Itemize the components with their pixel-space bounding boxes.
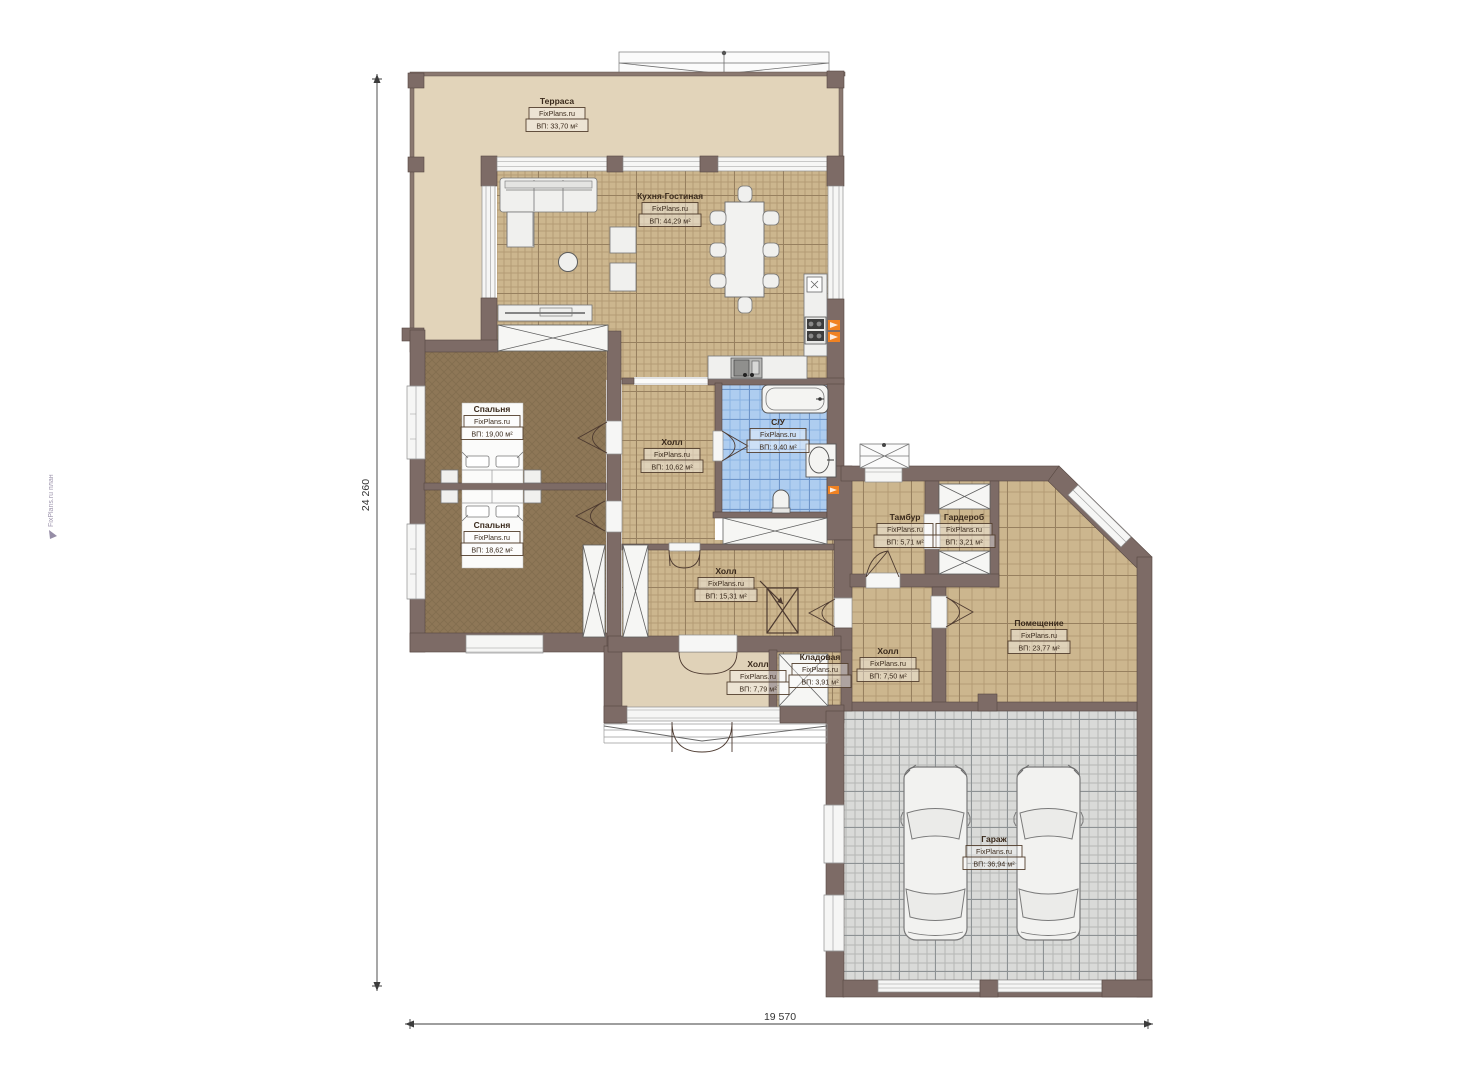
svg-text:FixPlans.ru план: FixPlans.ru план <box>48 474 55 527</box>
svg-text:FixPlans.ru: FixPlans.ru <box>539 109 575 118</box>
svg-text:24 260: 24 260 <box>360 479 372 511</box>
svg-text:FixPlans.ru: FixPlans.ru <box>740 672 776 681</box>
svg-text:FixPlans.ru: FixPlans.ru <box>652 204 688 213</box>
svg-text:Терраса: Терраса <box>540 96 574 106</box>
svg-text:FixPlans.ru: FixPlans.ru <box>887 525 923 534</box>
svg-text:FixPlans.ru: FixPlans.ru <box>708 579 744 588</box>
svg-text:Гараж: Гараж <box>981 834 1007 844</box>
svg-text:ВП: 33,70 м²: ВП: 33,70 м² <box>536 121 578 130</box>
svg-text:FixPlans.ru: FixPlans.ru <box>474 533 510 542</box>
svg-text:Гардероб: Гардероб <box>944 512 984 522</box>
svg-text:FixPlans.ru: FixPlans.ru <box>474 417 510 426</box>
svg-text:Холл: Холл <box>877 646 898 656</box>
svg-text:ВП: 10,62 м²: ВП: 10,62 м² <box>651 462 693 471</box>
svg-text:FixPlans.ru: FixPlans.ru <box>870 659 906 668</box>
svg-text:ВП: 44,29 м²: ВП: 44,29 м² <box>649 216 691 225</box>
svg-text:FixPlans.ru: FixPlans.ru <box>802 665 838 674</box>
svg-text:Холл: Холл <box>661 437 682 447</box>
svg-text:FixPlans.ru: FixPlans.ru <box>946 525 982 534</box>
svg-text:ВП: 3,91 м²: ВП: 3,91 м² <box>801 677 839 686</box>
svg-text:Спальня: Спальня <box>474 404 511 414</box>
svg-text:Кухня-Гостиная: Кухня-Гостиная <box>637 191 703 201</box>
svg-text:ВП: 15,31 м²: ВП: 15,31 м² <box>705 591 747 600</box>
svg-text:Холл: Холл <box>715 566 736 576</box>
svg-text:FixPlans.ru: FixPlans.ru <box>976 847 1012 856</box>
svg-text:FixPlans.ru: FixPlans.ru <box>760 430 796 439</box>
svg-text:ВП: 3,21 м²: ВП: 3,21 м² <box>945 537 983 546</box>
svg-text:ВП: 18,62 м²: ВП: 18,62 м² <box>471 545 513 554</box>
svg-text:ВП: 7,79 м²: ВП: 7,79 м² <box>739 684 777 693</box>
svg-text:ВП: 5,71 м²: ВП: 5,71 м² <box>886 537 924 546</box>
svg-text:ВП: 9,40 м²: ВП: 9,40 м² <box>759 442 797 451</box>
svg-text:ВП: 19,00 м²: ВП: 19,00 м² <box>471 429 513 438</box>
svg-text:Помещение: Помещение <box>1014 618 1063 628</box>
svg-text:FixPlans.ru: FixPlans.ru <box>1021 631 1057 640</box>
svg-text:Кладовая: Кладовая <box>800 652 841 662</box>
svg-text:ВП: 23,77 м²: ВП: 23,77 м² <box>1018 643 1060 652</box>
svg-text:Тамбур: Тамбур <box>890 512 921 522</box>
svg-text:FixPlans.ru: FixPlans.ru <box>654 450 690 459</box>
svg-text:Холл: Холл <box>747 659 768 669</box>
svg-text:С/У: С/У <box>771 417 786 427</box>
svg-text:19 570: 19 570 <box>764 1011 796 1023</box>
svg-text:ВП: 7,50 м²: ВП: 7,50 м² <box>869 671 907 680</box>
svg-text:Спальня: Спальня <box>474 520 511 530</box>
svg-text:ВП: 36,94 м²: ВП: 36,94 м² <box>973 859 1015 868</box>
